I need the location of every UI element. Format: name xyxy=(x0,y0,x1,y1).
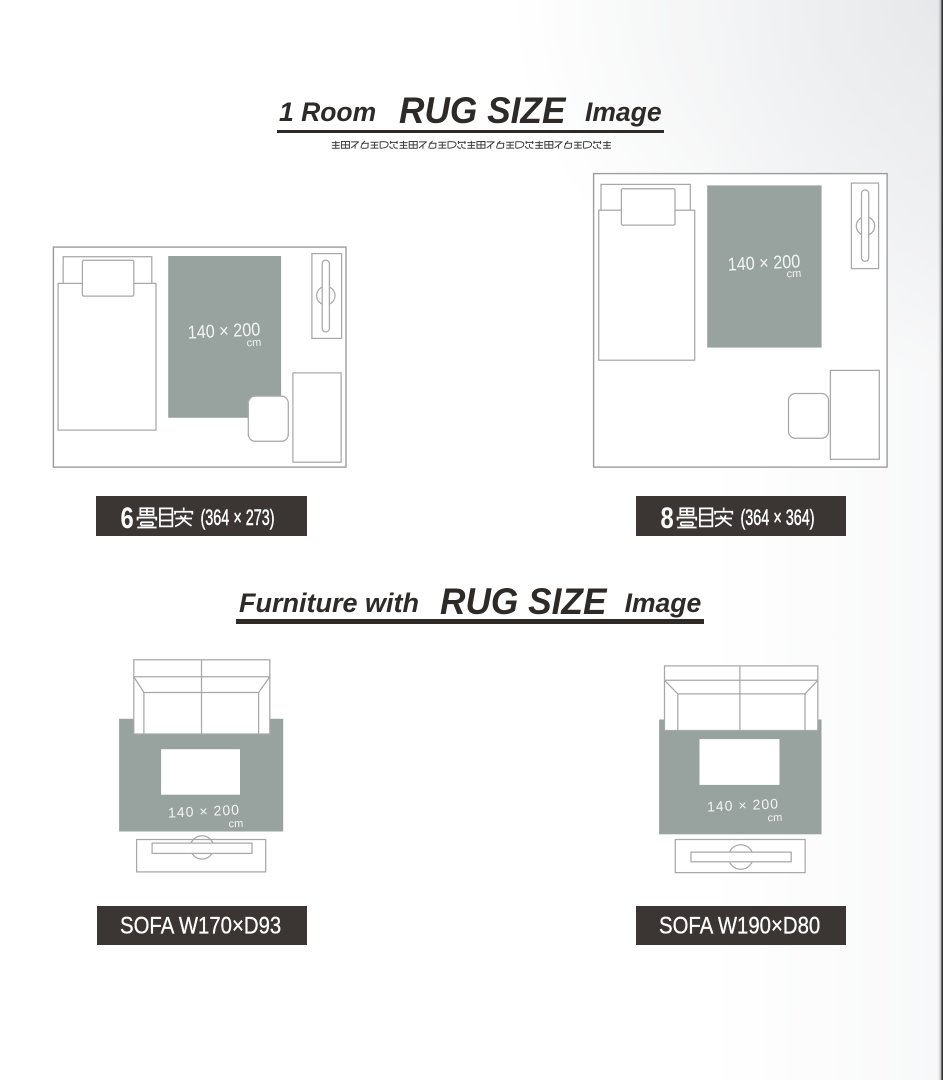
svg-text:SOFA W190×D80: SOFA W190×D80 xyxy=(659,912,820,939)
svg-text:SOFA W170×D93: SOFA W170×D93 xyxy=(120,912,281,939)
svg-text:(364 × 364): (364 × 364) xyxy=(741,505,815,530)
svg-text:6: 6 xyxy=(121,501,134,534)
svg-text:(364 × 273): (364 × 273) xyxy=(201,505,275,530)
svg-text:8: 8 xyxy=(661,501,674,534)
